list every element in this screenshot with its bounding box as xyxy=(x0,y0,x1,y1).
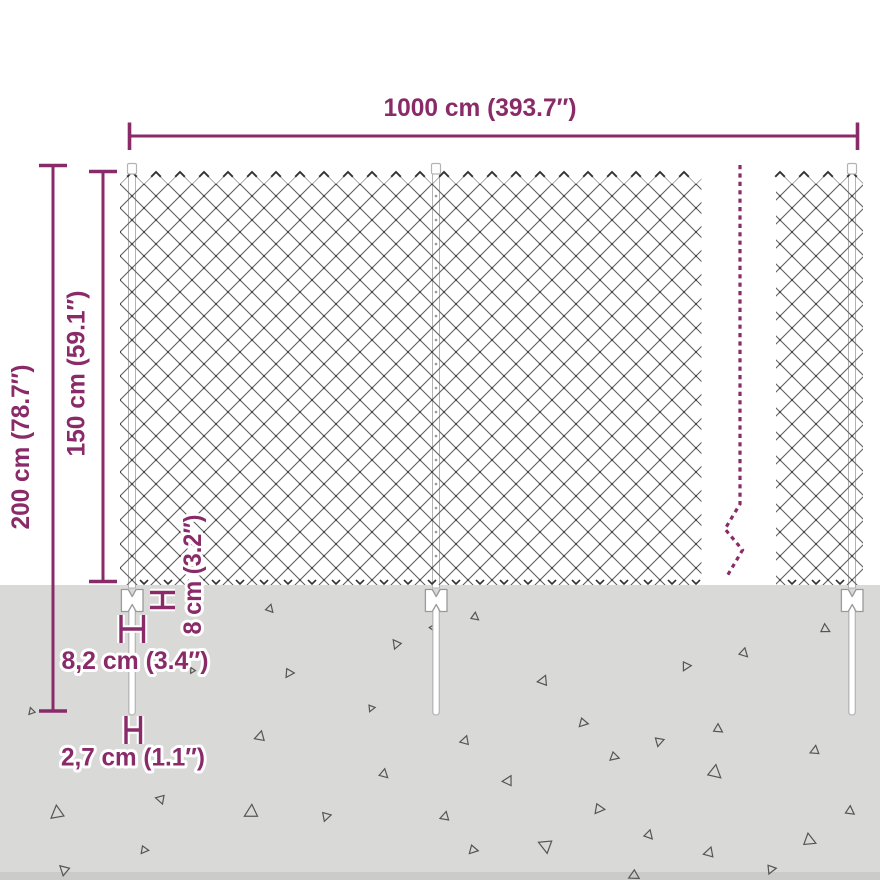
svg-text:1000 cm (393.7″): 1000 cm (393.7″) xyxy=(384,94,577,122)
svg-text:8,2 cm (3.4″): 8,2 cm (3.4″) xyxy=(62,647,209,675)
svg-text:8 cm (3.2″): 8 cm (3.2″) xyxy=(179,515,207,635)
svg-text:150 cm (59.1″): 150 cm (59.1″) xyxy=(63,291,91,457)
svg-text:200 cm (78.7″): 200 cm (78.7″) xyxy=(7,365,35,530)
svg-text:2,7 cm (1.1″): 2,7 cm (1.1″) xyxy=(61,744,205,772)
